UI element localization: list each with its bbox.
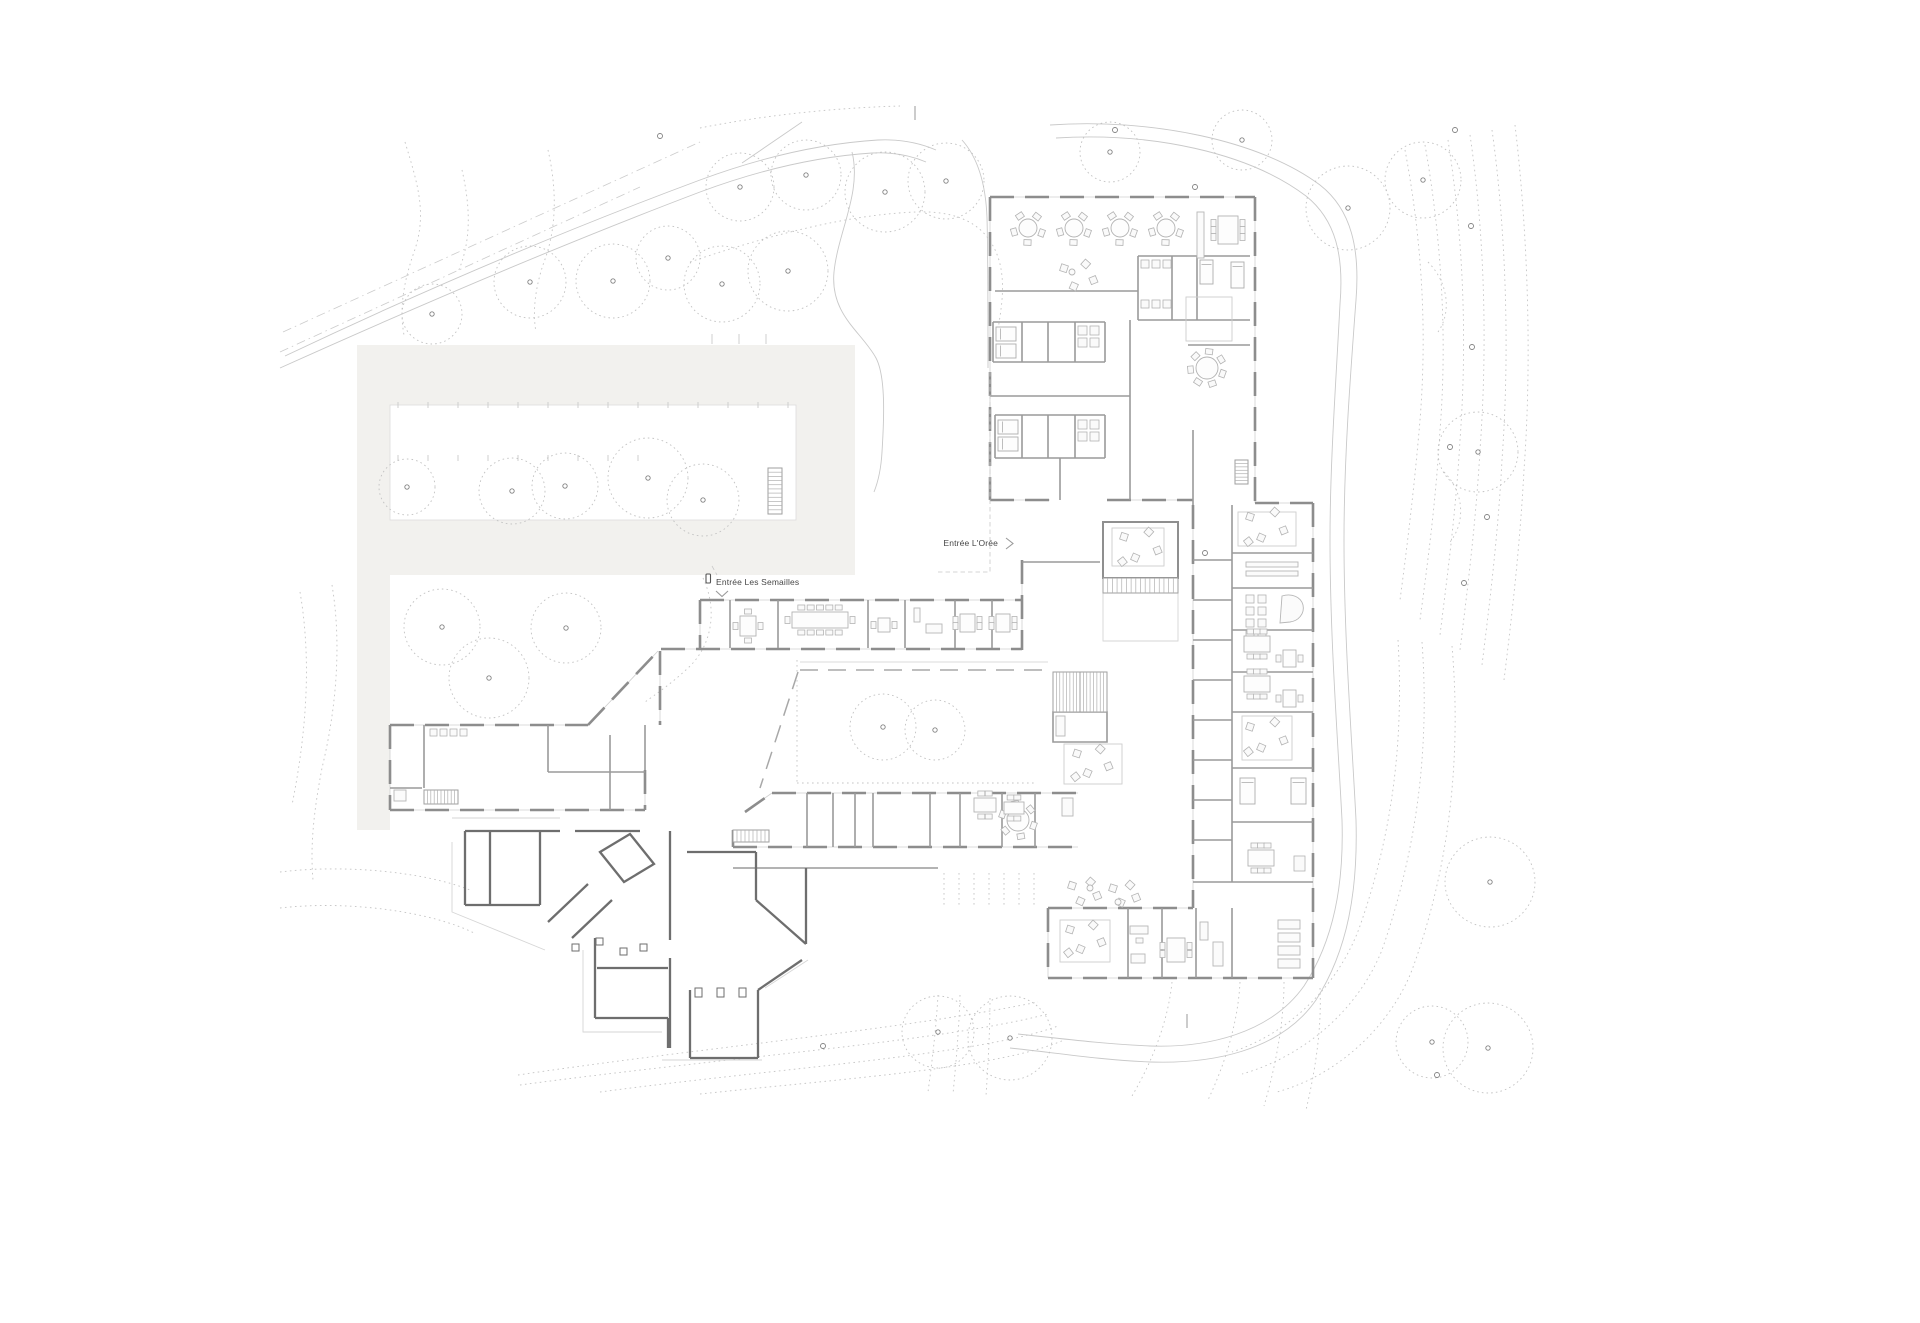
tree-trunk-icon: [528, 280, 532, 284]
chair-glyph: [1076, 897, 1085, 906]
chair-glyph: [1038, 229, 1046, 238]
chair-glyph: [826, 630, 833, 635]
door-jamb: [640, 944, 647, 951]
loop-path-inner: [1018, 137, 1342, 1046]
door-jamb: [717, 988, 724, 997]
chair-glyph: [1124, 212, 1133, 221]
terrace-table: [1115, 899, 1121, 905]
chair-glyph: [1032, 212, 1041, 221]
chair-glyph: [1240, 220, 1245, 227]
chair-glyph: [977, 623, 982, 630]
chair-glyph: [1264, 843, 1271, 848]
side-table: [1276, 690, 1303, 707]
lounge-chairs: [1243, 507, 1288, 546]
floor-plan-drawing: Entrée L'Orée Entrée Les Semailles: [0, 0, 1920, 1323]
road-axis-1: [283, 142, 700, 332]
chair-glyph: [1187, 366, 1193, 374]
tree-trunk-icon: [1476, 450, 1480, 454]
chair-glyph: [1010, 228, 1017, 236]
chair-glyph: [953, 623, 958, 630]
terrace-table: [1087, 885, 1093, 891]
chair-glyph: [1107, 212, 1116, 221]
chair-glyph: [1026, 805, 1035, 814]
chair-glyph: [1090, 338, 1099, 347]
table-glyph: [1283, 650, 1296, 667]
pavilion-room-wall: [1103, 522, 1178, 578]
tree-marker-icon: [1462, 581, 1467, 586]
tree-marker-icon: [1469, 224, 1474, 229]
table-glyph: [1283, 690, 1296, 707]
chair-glyph: [1163, 300, 1171, 308]
tree-marker-icon: [1470, 345, 1475, 350]
desk: [914, 608, 920, 622]
bed: [998, 420, 1018, 434]
chair-glyph: [1254, 669, 1261, 674]
chaise: [1062, 798, 1073, 816]
parking-stair: [768, 468, 782, 514]
chair-glyph: [1163, 260, 1171, 268]
table-glyph: [1248, 850, 1274, 866]
chair-glyph: [1081, 259, 1091, 269]
chair-glyph: [978, 791, 985, 796]
bed-glyph: [996, 344, 1016, 358]
chair-glyph: [1078, 432, 1087, 441]
shelf: [1278, 933, 1300, 942]
tree-trunk-icon: [881, 725, 885, 729]
chair-glyph: [1102, 228, 1109, 236]
seating-group: [1078, 326, 1099, 347]
chair-glyph: [430, 729, 437, 736]
chair-glyph: [1014, 816, 1021, 821]
chair-glyph: [1007, 795, 1014, 800]
chair-glyph: [989, 623, 994, 630]
chair-glyph: [1247, 654, 1254, 659]
chair-glyph: [1007, 816, 1014, 821]
contour-lines: [280, 106, 1528, 1110]
chair-glyph: [1264, 868, 1271, 873]
bed: [1200, 260, 1213, 284]
door-jamb: [620, 948, 627, 955]
small-table: [871, 618, 897, 632]
dining-table: [1148, 212, 1183, 246]
small-table: [733, 609, 763, 643]
chair-glyph: [1260, 654, 1267, 659]
ticks-layer: [915, 106, 1187, 1028]
table: [953, 614, 982, 632]
tree-trunk-icon: [666, 256, 670, 260]
chair-glyph: [1217, 355, 1226, 364]
chair-glyph: [1247, 694, 1254, 699]
tree-trunk-icon: [1108, 150, 1112, 154]
chair-glyph: [978, 814, 985, 819]
chair-glyph: [1060, 264, 1069, 273]
dining-table-rect: [1248, 843, 1274, 873]
grand-piano: [1280, 595, 1303, 623]
tree-trunk-icon: [563, 484, 567, 488]
tree-marker-icon: [1453, 128, 1458, 133]
chair-glyph: [798, 630, 805, 635]
chair-glyph: [1246, 595, 1254, 603]
chair-glyph: [1070, 240, 1077, 246]
tree-trunk-icon: [1421, 178, 1425, 182]
building-south-row: [733, 793, 1078, 868]
chair-glyph: [826, 605, 833, 610]
tree-trunk-icon: [564, 626, 568, 630]
chair-glyph: [745, 609, 752, 614]
side-table: [1276, 650, 1303, 667]
table-glyph: [740, 616, 756, 636]
chair-glyph: [1205, 348, 1213, 354]
chair-glyph: [1069, 282, 1078, 291]
building-southwest-wing: [452, 818, 808, 1060]
chair-glyph: [1152, 300, 1160, 308]
chair-glyph: [1061, 212, 1070, 221]
chair-glyph: [1078, 212, 1087, 221]
table-glyph: [1167, 938, 1185, 962]
chair-glyph: [1258, 843, 1265, 848]
chair-glyph: [850, 617, 855, 624]
table-glyph: [974, 798, 996, 812]
chair-glyph: [1015, 212, 1024, 221]
chair-glyph: [1279, 736, 1288, 745]
door-jamb: [695, 988, 702, 997]
tree-trunk-icon: [611, 279, 615, 283]
chevron-down-icon: [716, 591, 728, 597]
north-block-partitions: [990, 256, 1250, 505]
chair-glyph: [1251, 843, 1258, 848]
chair-glyph: [1024, 240, 1031, 246]
bed: [996, 327, 1016, 341]
chevron-right-icon: [1006, 538, 1013, 549]
chair-glyph: [1187, 951, 1192, 958]
dining-table-rect: [1244, 669, 1270, 699]
tree-trunk-icon: [405, 485, 409, 489]
table-glyph: [1244, 676, 1270, 692]
chair-glyph: [1078, 326, 1087, 335]
lounge-chairs: [1060, 259, 1098, 291]
sofa-row: [1141, 300, 1171, 308]
door-jamb: [572, 944, 579, 951]
southwest-envelope: [452, 818, 808, 1060]
dining-table: [1102, 212, 1137, 246]
building-north-block: [990, 197, 1313, 505]
table: [974, 791, 996, 819]
dining-table: [1056, 212, 1091, 246]
chair-glyph: [1258, 595, 1266, 603]
tree-marker-icon: [1193, 185, 1198, 190]
tree-trunk-icon: [883, 190, 887, 194]
chair-glyph: [1258, 607, 1266, 615]
round-table: [1187, 348, 1226, 387]
southwest-walls: [465, 831, 806, 1058]
chair-glyph: [1187, 943, 1192, 950]
lounge-chairs: [1243, 717, 1288, 756]
table: [1004, 795, 1024, 821]
chair-glyph: [1243, 537, 1253, 547]
tree-marker-icon: [658, 134, 663, 139]
table-glyph: [878, 618, 890, 632]
bed-glyph: [1231, 262, 1244, 288]
chair-glyph: [1270, 507, 1280, 517]
chair-glyph: [835, 605, 842, 610]
chair-glyph: [1078, 338, 1087, 347]
lounge-chairs: [1071, 744, 1113, 782]
door-jamb: [739, 988, 746, 997]
tree-trunk-icon: [440, 625, 444, 629]
chair-glyph: [1176, 229, 1184, 238]
chair-glyph: [1246, 619, 1254, 627]
chair-glyph: [1240, 234, 1245, 241]
tree-trunk-icon: [786, 269, 790, 273]
bed-glyph: [1240, 778, 1255, 804]
chair-glyph: [1298, 655, 1303, 662]
chair-glyph: [1270, 717, 1280, 727]
meeting-table: [1160, 938, 1192, 962]
chair-glyph: [1090, 326, 1099, 335]
tree-trunk-icon: [804, 173, 808, 177]
chair-glyph: [1130, 229, 1138, 238]
chair-glyph: [1012, 623, 1017, 630]
chair-glyph: [1153, 546, 1162, 555]
table-glyph: [960, 614, 975, 632]
bed: [996, 344, 1016, 358]
chair-glyph: [1017, 833, 1025, 840]
chair-glyph: [1298, 695, 1303, 702]
chair-glyph: [1152, 260, 1160, 268]
bed-glyph: [996, 327, 1016, 341]
road-edge-2: [280, 153, 926, 368]
couch: [1213, 942, 1223, 966]
road-axis-2: [280, 187, 640, 352]
tree-trunk-icon: [1488, 880, 1492, 884]
chair-glyph: [1211, 220, 1216, 227]
tree-marker-icon: [1435, 1073, 1440, 1078]
side-table: [1069, 269, 1075, 275]
chair-glyph: [1089, 276, 1098, 285]
chair-glyph: [798, 605, 805, 610]
chair-glyph: [1208, 380, 1217, 388]
tree-trunk-icon: [720, 282, 724, 286]
chair-glyph: [1030, 821, 1038, 830]
fixture: [394, 790, 406, 801]
chair-glyph: [1141, 300, 1149, 308]
bed: [998, 437, 1018, 451]
chair-glyph: [807, 630, 814, 635]
tree-trunk-icon: [936, 1030, 940, 1034]
chair-glyph: [1260, 694, 1267, 699]
rug: [1186, 297, 1232, 341]
tree-trunk-icon: [430, 312, 434, 316]
chair-glyph: [1097, 938, 1106, 947]
chair-glyph: [1071, 772, 1081, 782]
dining-table-rect: [1211, 216, 1245, 244]
chair-glyph: [1104, 762, 1113, 771]
table-glyph: [1111, 219, 1129, 237]
entrance-marker-icon: [706, 574, 711, 583]
chair-glyph: [1093, 891, 1102, 900]
armchair: [1294, 856, 1305, 871]
tree-trunk-icon: [1430, 1040, 1434, 1044]
chair-glyph: [1251, 868, 1258, 873]
chair-glyph: [1153, 212, 1162, 221]
tree-trunk-icon: [1486, 1046, 1490, 1050]
chair-glyph: [460, 729, 467, 736]
table-glyph: [1157, 219, 1175, 237]
chair-glyph: [1276, 655, 1281, 662]
parking-lot: [390, 405, 796, 520]
chair-glyph: [1276, 695, 1281, 702]
chair-glyph: [1068, 881, 1077, 890]
table-glyph: [1244, 636, 1270, 652]
pavilion-steps: [1103, 578, 1178, 593]
chair-glyph: [1014, 795, 1021, 800]
chair-glyph: [1116, 240, 1123, 246]
chair-glyph: [1083, 768, 1092, 777]
table: [989, 614, 1017, 632]
seating-group: [1078, 420, 1099, 441]
chair-glyph: [1088, 920, 1098, 930]
table-glyph: [1218, 216, 1238, 244]
chair-glyph: [1260, 669, 1267, 674]
chair-glyph: [1131, 553, 1140, 562]
chair-glyph: [1279, 526, 1288, 535]
chair-glyph: [1160, 943, 1165, 950]
meeting-table-long: [785, 605, 855, 635]
courtyard-ramp: [733, 830, 769, 842]
low-table: [1131, 954, 1145, 963]
chair-glyph: [1084, 229, 1092, 238]
bed-glyph: [1291, 778, 1306, 804]
building-middle-wing: [661, 560, 1100, 788]
counter: [1056, 716, 1065, 736]
chair-glyph: [1076, 944, 1085, 953]
chair-glyph: [1117, 557, 1127, 567]
bed: [1231, 262, 1244, 288]
chair-glyph: [1246, 512, 1255, 521]
tree-trunk-icon: [1240, 138, 1244, 142]
kitchenette-units: [430, 729, 467, 736]
chair-glyph: [785, 617, 790, 624]
chair-glyph: [1240, 227, 1245, 234]
table-long: [1246, 562, 1298, 567]
chair-glyph: [1148, 228, 1155, 236]
chair-glyph: [1211, 234, 1216, 241]
chair-glyph: [1193, 378, 1202, 387]
west-wing-stair: [424, 790, 458, 804]
entrance-oree-label: Entrée L'Orée: [943, 538, 998, 548]
chair-glyph: [1125, 880, 1135, 890]
chair-glyph: [1191, 352, 1200, 361]
chair-glyph: [807, 605, 814, 610]
courtyard-gallery-wall: [760, 670, 1048, 788]
dining-table: [1010, 212, 1045, 246]
chair-glyph: [1260, 629, 1267, 634]
chair-glyph: [835, 630, 842, 635]
table-glyph: [1004, 802, 1024, 814]
shelf: [1278, 959, 1300, 968]
chair-glyph: [1078, 420, 1087, 429]
stair-outline: [768, 468, 782, 514]
bed: [1291, 778, 1306, 804]
chair-glyph: [1132, 893, 1141, 902]
tree-marker-icon: [1448, 445, 1453, 450]
chair-glyph: [1254, 654, 1261, 659]
chair-glyph: [1254, 629, 1261, 634]
chair-glyph: [1247, 669, 1254, 674]
chair-glyph: [1056, 228, 1063, 236]
bed-glyph: [998, 420, 1018, 434]
chair-glyph: [892, 622, 897, 629]
sideboard: [1197, 212, 1204, 258]
stair-outline: [733, 830, 769, 842]
north-block-stair: [1235, 460, 1248, 484]
chair-glyph: [1257, 743, 1266, 752]
table: [926, 624, 942, 633]
chair-glyph: [985, 814, 992, 819]
chair-glyph: [1258, 619, 1266, 627]
chair-glyph: [733, 623, 738, 630]
tree-trunk-icon: [738, 185, 742, 189]
bed-glyph: [1200, 260, 1213, 284]
chair-glyph: [745, 638, 752, 643]
floor-plan-page: Entrée L'Orée Entrée Les Semailles: [0, 0, 1920, 1323]
tree-marker-icon: [1203, 551, 1208, 556]
chair-glyph: [817, 630, 824, 635]
table-long: [1246, 571, 1298, 576]
tree-trunk-icon: [487, 676, 491, 680]
bed-glyph: [998, 437, 1018, 451]
chair-glyph: [1258, 868, 1265, 873]
tree-marker-icon: [821, 1044, 826, 1049]
chair-glyph: [1246, 722, 1255, 731]
hall-stair-flight-2: [1080, 672, 1107, 712]
chair-glyph: [1243, 747, 1253, 757]
table-glyph: [1065, 219, 1083, 237]
tree-trunk-icon: [1346, 206, 1350, 210]
tree-marker-icon: [1485, 515, 1490, 520]
tree-trunk-icon: [944, 179, 948, 183]
terrain-layer: [280, 106, 1528, 1110]
trees-layer: [379, 110, 1535, 1093]
desk: [1130, 926, 1148, 934]
chair-glyph: [1064, 948, 1074, 958]
desk-chair: [1136, 938, 1143, 943]
chair-glyph: [758, 623, 763, 630]
tree-trunk-icon: [1008, 1036, 1012, 1040]
chair-glyph: [1254, 694, 1261, 699]
sofa-row: [1141, 260, 1171, 268]
chair-glyph: [1090, 432, 1099, 441]
chair-glyph: [1170, 212, 1179, 221]
tree-trunk-icon: [933, 728, 937, 732]
chair-glyph: [450, 729, 457, 736]
desk: [1200, 922, 1208, 940]
chair-glyph: [1247, 629, 1254, 634]
chair-glyph: [1141, 260, 1149, 268]
chair-glyph: [1211, 227, 1216, 234]
chair-glyph: [817, 605, 824, 610]
chair-glyph: [1219, 369, 1227, 378]
chair-glyph: [1120, 532, 1129, 541]
entry-path: [962, 140, 988, 368]
terrace-chairs: [1068, 877, 1102, 906]
chair-glyph: [1095, 744, 1105, 754]
tree-trunk-icon: [646, 476, 650, 480]
chair-glyph: [1090, 420, 1099, 429]
door-jamb: [596, 938, 603, 945]
terrace-chairs: [1109, 880, 1141, 907]
shelf: [1278, 946, 1300, 955]
